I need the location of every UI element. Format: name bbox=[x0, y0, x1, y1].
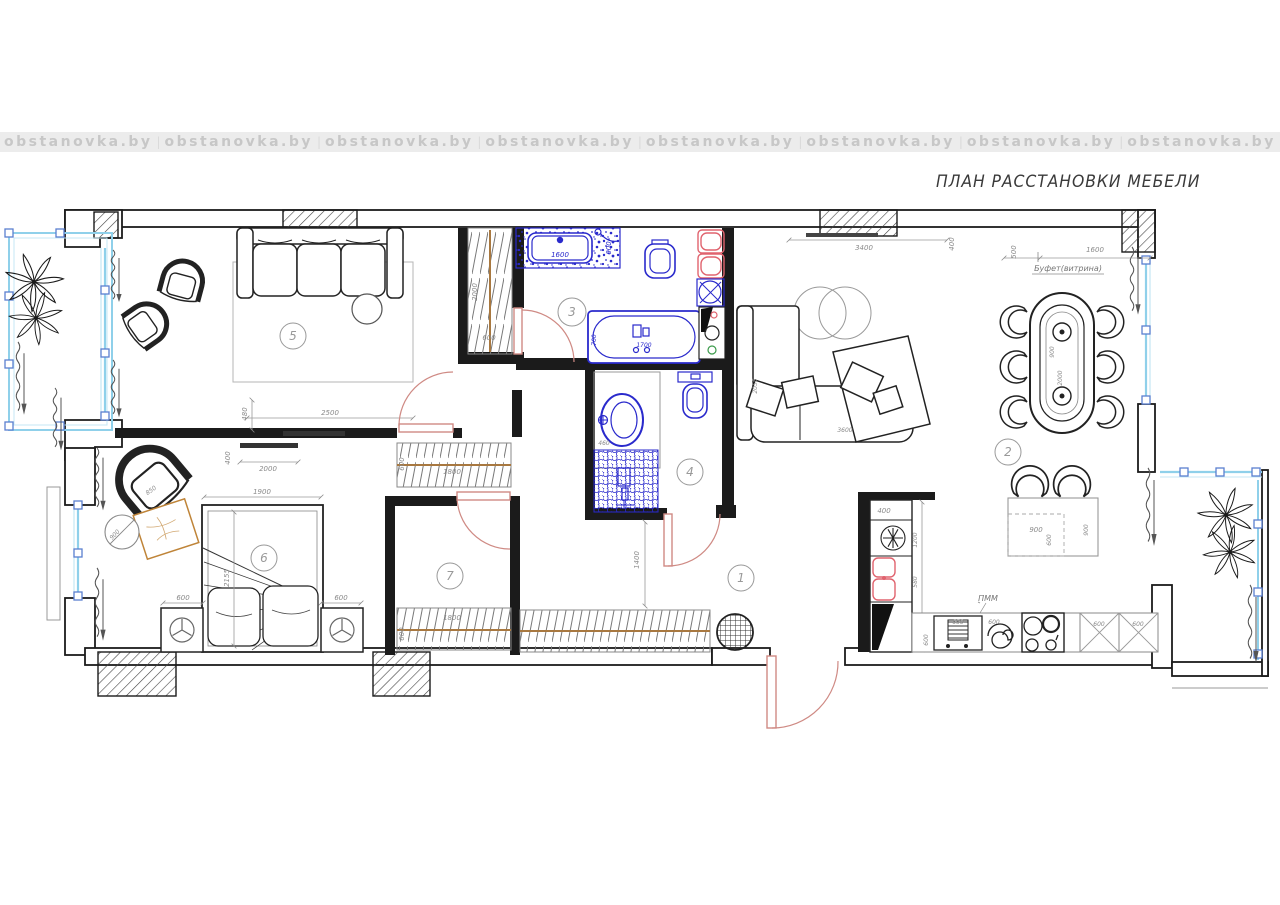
dim-table-width: 900 bbox=[1049, 346, 1056, 358]
curtain bbox=[1146, 468, 1156, 546]
dim-cab2: 600 bbox=[1132, 621, 1144, 628]
door-leaf-bathroom bbox=[514, 308, 522, 354]
tv-console-living bbox=[283, 431, 345, 436]
pendant-circle bbox=[819, 287, 871, 339]
wc-toilet bbox=[678, 372, 712, 418]
dim-counter-depth: 600 bbox=[605, 241, 613, 255]
dim-living-offset: 480 bbox=[241, 407, 249, 421]
door-leaf-wc bbox=[664, 514, 672, 566]
room-label-hall: 1 bbox=[728, 565, 754, 591]
wc-room: 460 4 bbox=[594, 372, 720, 566]
buffet-label: Буфет(витрина) bbox=[1034, 264, 1102, 273]
room-label-wc: 4 bbox=[677, 459, 703, 485]
door-swing-closet bbox=[457, 496, 510, 549]
round-table: 900 bbox=[105, 515, 139, 549]
nightstand-right bbox=[321, 608, 363, 652]
svg-text:7: 7 bbox=[446, 569, 454, 583]
dim-rail-bot-depth: 600 bbox=[398, 627, 406, 641]
room-label-bedroom: 6 bbox=[251, 545, 277, 571]
laundry-basket bbox=[717, 614, 753, 650]
sofa bbox=[237, 228, 403, 298]
dim-kitchen-sink: 580 bbox=[912, 576, 919, 588]
bathtub: 700 1700 bbox=[588, 311, 700, 363]
dim-hood: 600 bbox=[988, 619, 1000, 626]
hall-wardrobe: 2000 600 bbox=[468, 228, 512, 354]
svg-text:2: 2 bbox=[1004, 445, 1012, 459]
svg-text:1: 1 bbox=[737, 571, 745, 585]
door-leaf-living bbox=[399, 424, 453, 432]
dim-island-length: 900 bbox=[1083, 524, 1090, 536]
bed bbox=[202, 505, 323, 652]
dim-rail-top-depth: 600 bbox=[398, 457, 406, 471]
dim-sofa-len: 3600 bbox=[837, 427, 852, 434]
dim-island-width: 900 bbox=[1029, 526, 1043, 534]
dim-window-offset: 400 bbox=[948, 237, 956, 251]
dim-rail-bot-len: 1800 bbox=[443, 614, 461, 622]
curtain bbox=[95, 448, 105, 510]
kitchen-base-run: 650 600 600 600 600 bbox=[912, 613, 1158, 652]
wall-pier bbox=[820, 210, 897, 236]
door-leaf-entry bbox=[767, 656, 776, 728]
room-label-living: 5 bbox=[280, 323, 306, 349]
dim-buffet-depth: 500 bbox=[1010, 245, 1018, 259]
dim-nightstand-left: 600 bbox=[176, 594, 190, 602]
closet-rail-bottom: 1800 600 bbox=[397, 608, 511, 650]
dishwasher-label: ПММ bbox=[978, 594, 998, 603]
dim-bath-len: 1700 bbox=[636, 342, 651, 349]
dim-nightstand-right: 600 bbox=[334, 594, 348, 602]
tv-console-bedroom bbox=[240, 443, 298, 448]
fridge-icon bbox=[881, 526, 905, 550]
hallway: 1 1400 bbox=[520, 522, 838, 728]
dim-bedroom-tv: 2000 bbox=[259, 465, 277, 473]
pendant-circle bbox=[794, 287, 846, 339]
shower bbox=[594, 450, 658, 512]
dim-cab1: 600 bbox=[1093, 621, 1105, 628]
room-label-great-room: 2 bbox=[995, 439, 1021, 465]
bathroom: 1600 600 700 1700 bbox=[514, 228, 725, 363]
wall-pier bbox=[98, 652, 176, 696]
laundry-column bbox=[697, 230, 725, 359]
corner-sofa bbox=[737, 306, 930, 442]
dim-buffet-len: 1600 bbox=[1086, 246, 1104, 254]
dim-bath-width: 700 bbox=[591, 334, 598, 346]
dim-kitchen-upper: 400 bbox=[877, 507, 891, 515]
dim-oven: 650 bbox=[952, 619, 964, 626]
hob bbox=[1022, 613, 1064, 652]
island-table: 900 600 900 bbox=[1008, 466, 1098, 556]
svg-text:5: 5 bbox=[289, 329, 297, 343]
left-balcony bbox=[0, 229, 122, 450]
right-window-upper bbox=[1130, 247, 1150, 404]
curtain bbox=[53, 388, 63, 450]
closet-rail-top: 1800 600 bbox=[397, 443, 511, 487]
curtain bbox=[16, 342, 26, 415]
wall-pier bbox=[1122, 210, 1155, 252]
dim-rail-top-len: 1800 bbox=[443, 468, 461, 476]
wall-pier bbox=[373, 652, 430, 696]
dim-kitchen-base: 600 bbox=[923, 634, 930, 646]
faucet bbox=[557, 237, 563, 243]
corridor-wardrobe bbox=[520, 610, 710, 652]
svg-text:6: 6 bbox=[260, 551, 268, 565]
dim-wardrobe-depth: 600 bbox=[482, 334, 496, 342]
dim-hall-width: 1400 bbox=[633, 551, 641, 569]
floor-plan-page: obstanovka.by | obstanovka.by | obstanov… bbox=[0, 0, 1280, 905]
dim-window: 3400 bbox=[855, 244, 873, 252]
door-swing-entry bbox=[772, 661, 838, 728]
dim-wc-sink: 460 bbox=[598, 440, 610, 447]
dim-counter-len: 1600 bbox=[551, 251, 569, 259]
room-label-closet: 7 bbox=[437, 563, 463, 589]
window-mullions bbox=[5, 229, 109, 430]
dim-sofa-depth: 2055 bbox=[752, 378, 759, 393]
nightstand-left bbox=[161, 608, 203, 652]
living-room: 5 2500 480 bbox=[120, 228, 413, 436]
dim-table-len: 2000 bbox=[1057, 370, 1064, 385]
toilet-bathroom bbox=[645, 240, 675, 278]
dining-set: 900 2000 bbox=[1000, 293, 1123, 433]
wall-pier bbox=[94, 212, 118, 238]
pillow bbox=[263, 586, 318, 646]
floor-plan-drawing: 5 2500 480 2000 600 1600 600 bbox=[0, 0, 1280, 905]
great-room: 3400 400 500 1600 Буфет(витрина) bbox=[737, 233, 1150, 556]
dim-bedroom-offset: 400 bbox=[224, 451, 232, 465]
base-cabinets: 600 600 bbox=[1080, 613, 1158, 652]
armchair bbox=[120, 296, 175, 351]
plant bbox=[1193, 481, 1261, 549]
armchair bbox=[158, 257, 207, 305]
dim-bed-length: 2155 bbox=[223, 569, 231, 587]
svg-text:4: 4 bbox=[686, 465, 694, 479]
side-table bbox=[352, 294, 382, 324]
door-leaf-closet bbox=[457, 492, 510, 500]
svg-text:3: 3 bbox=[568, 305, 576, 319]
kitchen-tall-units bbox=[870, 500, 912, 652]
dim-living-tv: 2500 bbox=[321, 409, 339, 417]
dim-kitchen-fridge: 1200 bbox=[912, 532, 919, 547]
dim-bed-width: 1900 bbox=[253, 488, 271, 496]
room-label-bathroom: 3 bbox=[558, 298, 586, 326]
door-swing-wc bbox=[668, 514, 720, 566]
curtain bbox=[95, 568, 105, 641]
window-sill-console bbox=[806, 233, 878, 237]
wc-sink bbox=[598, 394, 643, 446]
dim-island-depth: 600 bbox=[1046, 534, 1053, 546]
dim-wardrobe-length: 2000 bbox=[471, 283, 479, 301]
closet: 1800 600 1800 600 7 bbox=[397, 443, 511, 650]
